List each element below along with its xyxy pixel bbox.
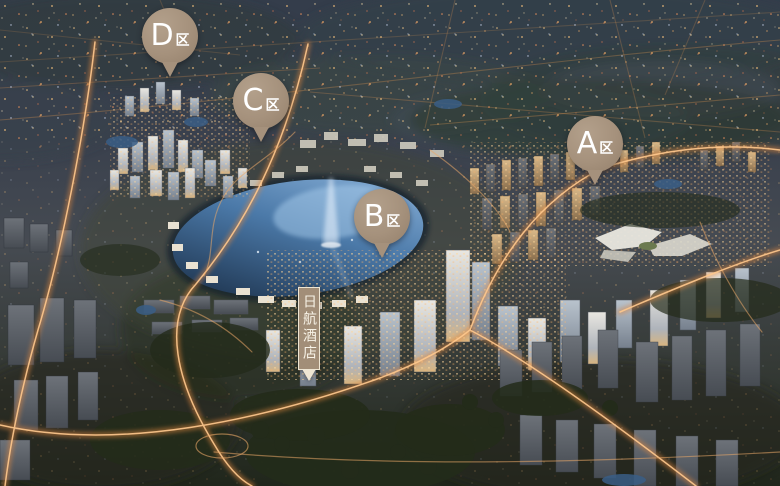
pin-letter: D [150,21,173,51]
pin-suffix: 区 [386,215,400,229]
pin-tail-icon [162,62,178,77]
pin-letter: A [577,129,598,159]
pin-suffix: 区 [265,99,279,113]
hotel-label: 日航酒店 [298,287,320,381]
hotel-label-tail-icon [302,369,316,381]
district-pin-c[interactable]: C 区 [233,73,289,142]
district-pin-b[interactable]: B 区 [354,189,410,258]
pin-letter: B [364,202,385,232]
pin-tail-icon [374,243,390,258]
pin-letter: C [243,86,264,116]
hotel-label-text: 日航酒店 [298,287,320,370]
pin-circle: B 区 [354,189,410,245]
masterplan-rendering: D 区 C 区 B 区 A 区 日航酒店 [0,0,780,486]
pin-tail-icon [587,170,603,185]
pin-suffix: 区 [599,142,613,156]
pin-circle: D 区 [142,8,198,64]
pin-tail-icon [253,127,269,142]
district-pin-a[interactable]: A 区 [567,116,623,185]
pin-circle: A 区 [567,116,623,172]
pin-suffix: 区 [176,34,190,48]
district-pin-d[interactable]: D 区 [142,8,198,77]
pin-circle: C 区 [233,73,289,129]
